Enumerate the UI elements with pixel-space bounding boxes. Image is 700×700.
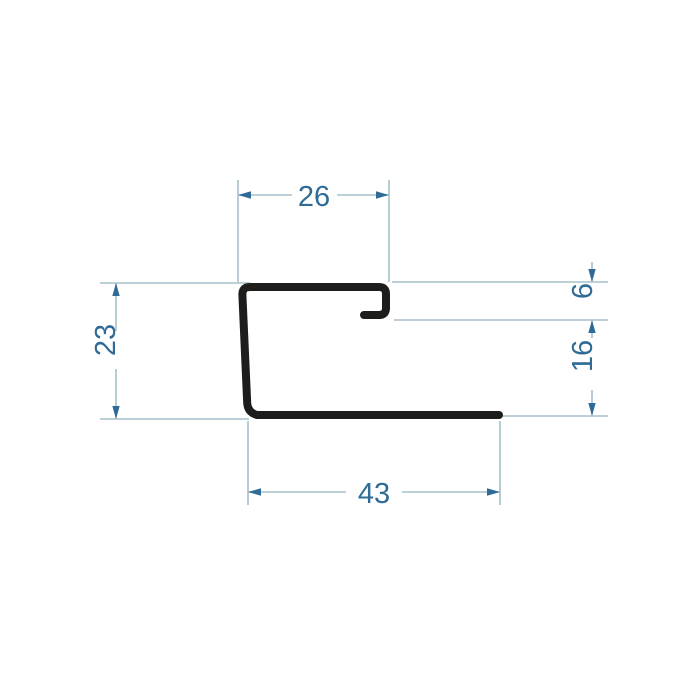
dim-label-left-height: 23 <box>90 324 122 356</box>
dim-label-lip-height: 6 <box>567 283 599 299</box>
profile-outline <box>242 287 499 415</box>
drawing-canvas: 26 23 6 16 43 <box>0 0 700 700</box>
dim-label-top-width: 26 <box>298 181 330 213</box>
arrow-left-icon <box>238 191 251 198</box>
arrow-up-right-icon <box>588 320 595 333</box>
arrow-left-bottom-icon <box>248 488 261 495</box>
arrow-right-bottom-icon <box>487 488 500 495</box>
dim-label-bottom-width: 43 <box>358 478 390 510</box>
profile-cross-section-drawing: 26 23 6 16 43 <box>0 0 700 700</box>
arrow-down-icon <box>112 406 119 419</box>
arrow-down-right-icon <box>588 403 595 416</box>
dimension-extension-lines <box>100 180 608 505</box>
dimension-arrowheads <box>112 191 595 495</box>
dimension-labels: 26 23 6 16 43 <box>90 181 599 510</box>
arrow-down-lip-icon <box>588 269 595 282</box>
dim-label-right-height: 16 <box>567 340 599 372</box>
arrow-up-icon <box>112 283 119 296</box>
arrow-right-icon <box>376 191 389 198</box>
